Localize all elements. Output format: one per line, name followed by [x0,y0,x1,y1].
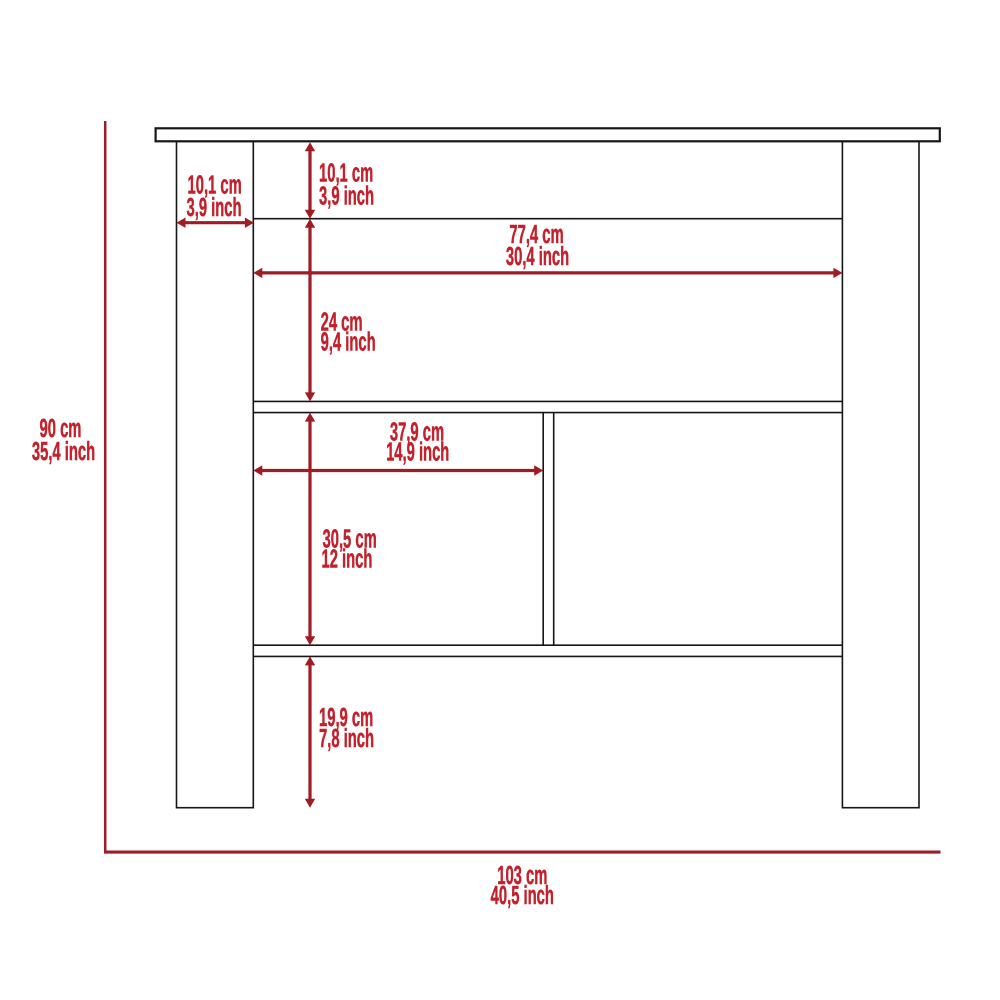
svg-text:7,8 inch: 7,8 inch [319,725,374,753]
svg-text:40,5 inch: 40,5 inch [491,882,554,910]
svg-text:3,9 inch: 3,9 inch [319,182,374,210]
svg-text:30,4 inch: 30,4 inch [506,243,569,271]
svg-text:9,4 inch: 9,4 inch [321,328,376,356]
svg-text:35,4 inch: 35,4 inch [32,438,95,466]
svg-text:12 inch: 12 inch [322,545,373,573]
svg-text:3,9 inch: 3,9 inch [187,194,242,222]
svg-text:14,9 inch: 14,9 inch [386,438,449,466]
